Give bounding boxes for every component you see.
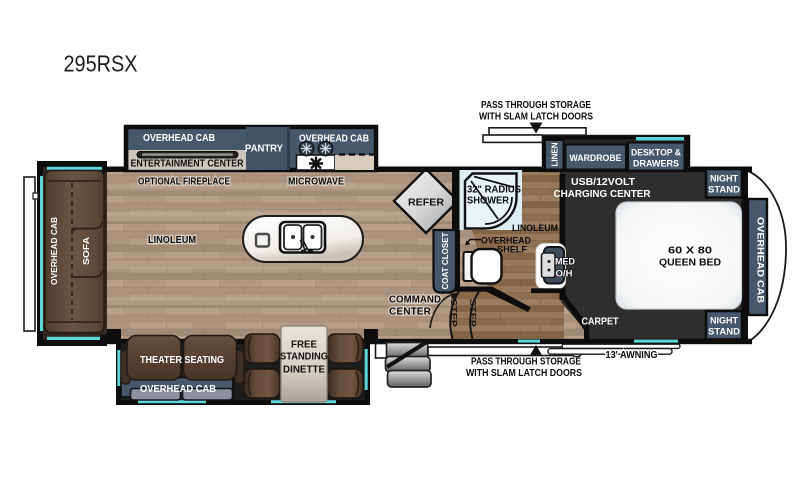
svg-text:MED: MED (555, 256, 575, 267)
svg-text:COAT CLOSET: COAT CLOSET (440, 232, 450, 290)
svg-text:LINEN: LINEN (551, 142, 560, 166)
svg-text:STANDING: STANDING (280, 352, 328, 363)
svg-text:CHARGING CENTER: CHARGING CENTER (554, 189, 652, 200)
svg-text:CENTER: CENTER (389, 307, 432, 318)
svg-text:CARPET: CARPET (582, 317, 619, 328)
svg-text:DINETTE: DINETTE (283, 365, 325, 376)
svg-text:O/H: O/H (556, 268, 573, 279)
svg-text:PASS THROUGH STORAGE: PASS THROUGH STORAGE (481, 100, 591, 111)
svg-text:WARDROBE: WARDROBE (570, 153, 623, 164)
svg-text:STEP: STEP (449, 299, 459, 327)
svg-text:REFER: REFER (408, 197, 444, 209)
svg-text:DRAWERS: DRAWERS (633, 159, 680, 170)
svg-text:PASS THROUGH STORAGE: PASS THROUGH STORAGE (471, 357, 581, 368)
svg-text:SOFA: SOFA (81, 237, 91, 265)
svg-text:LINOLEUM: LINOLEUM (512, 223, 558, 234)
svg-text:STAND: STAND (708, 185, 740, 195)
svg-text:COMMAND: COMMAND (389, 295, 441, 306)
svg-text:LINOLEUM: LINOLEUM (148, 235, 196, 246)
svg-text:OPTIONAL FIREPLACE: OPTIONAL FIREPLACE (138, 177, 230, 188)
svg-text:STAND: STAND (708, 327, 740, 337)
svg-text:13' AWNING: 13' AWNING (606, 350, 658, 361)
svg-text:OVERHEAD CAB: OVERHEAD CAB (140, 384, 216, 395)
svg-text:NIGHT: NIGHT (710, 316, 738, 326)
svg-text:SHELF: SHELF (497, 245, 527, 255)
svg-text:ENTERTAINMENT CENTER: ENTERTAINMENT CENTER (131, 159, 245, 170)
svg-text:NIGHT: NIGHT (710, 174, 738, 184)
svg-text:WITH SLAM LATCH DOORS: WITH SLAM LATCH DOORS (479, 112, 593, 123)
svg-text:MICROWAVE: MICROWAVE (288, 177, 344, 188)
svg-text:USB/12VOLT: USB/12VOLT (571, 177, 635, 188)
svg-text:QUEEN BED: QUEEN BED (659, 258, 721, 269)
svg-text:FREE: FREE (291, 340, 317, 351)
svg-text:STEP: STEP (468, 299, 478, 327)
svg-text:DESKTOP &: DESKTOP & (631, 148, 681, 159)
svg-text:SHOWER: SHOWER (467, 195, 509, 207)
svg-text:PANTRY: PANTRY (245, 144, 283, 155)
svg-text:WITH SLAM LATCH DOORS: WITH SLAM LATCH DOORS (466, 368, 582, 379)
svg-text:OVERHEAD CAB: OVERHEAD CAB (49, 217, 59, 285)
svg-text:OVERHEAD CAB: OVERHEAD CAB (756, 217, 766, 304)
svg-text:295RSX: 295RSX (64, 51, 138, 77)
svg-text:60 X 80: 60 X 80 (668, 246, 712, 257)
svg-text:OVERHEAD CAB: OVERHEAD CAB (143, 133, 215, 144)
svg-text:THEATER SEATING: THEATER SEATING (140, 355, 224, 366)
